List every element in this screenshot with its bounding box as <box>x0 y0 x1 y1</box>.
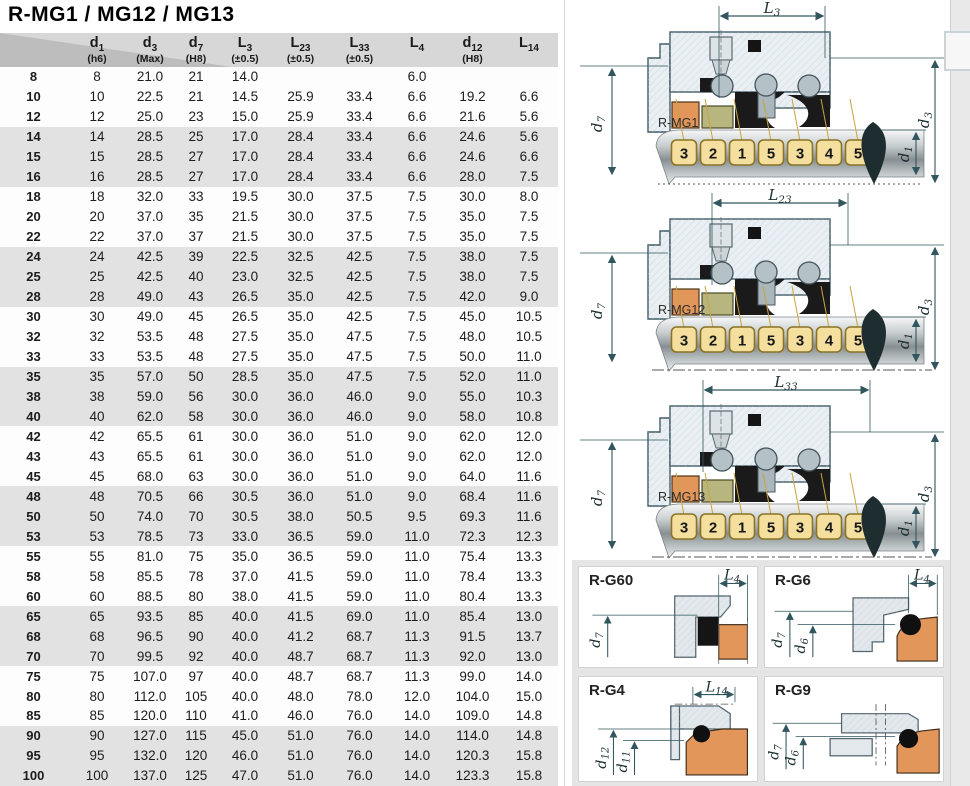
cell-d12: 38.0 <box>445 267 500 287</box>
cell-d1: 53 <box>67 526 127 546</box>
cell-d7: 90 <box>173 626 219 646</box>
cell-size: 12 <box>0 107 67 127</box>
cell-L14: 14.8 <box>500 706 558 726</box>
cell-d3: 21.0 <box>127 67 173 87</box>
cell-d1: 95 <box>67 746 127 766</box>
cell-d1: 58 <box>67 566 127 586</box>
cell-d3: 137.0 <box>127 766 173 786</box>
cell-size: 20 <box>0 207 67 227</box>
cell-L4: 7.5 <box>389 267 445 287</box>
cell-L3: 19.5 <box>219 187 271 207</box>
cell-L23: 36.0 <box>271 406 330 426</box>
seal-model-label: R-MG12 <box>658 303 705 317</box>
seal-cross-section-mg13: L33 R-MG13 3 2 1 5 3 4 5 d7 d1 d3 <box>572 374 950 560</box>
cell-L4: 12.0 <box>389 686 445 706</box>
cell-d12: 35.0 <box>445 207 500 227</box>
cell-L23 <box>271 67 330 87</box>
cell-L23: 32.5 <box>271 247 330 267</box>
cell-L3: 14.5 <box>219 87 271 107</box>
cell-size: 40 <box>0 406 67 426</box>
cell-d12: 35.0 <box>445 227 500 247</box>
dimension-label-L4: L4 <box>723 568 740 586</box>
svg-text:4: 4 <box>825 520 834 537</box>
svg-text:1: 1 <box>738 333 746 350</box>
dimension-label-d3: d3 <box>915 112 935 129</box>
table-body: 8 8 21.0 21 14.0 6.0 10 10 22.5 21 14.5 … <box>0 67 558 786</box>
cell-d12: 123.3 <box>445 766 500 786</box>
cell-size: 45 <box>0 466 67 486</box>
cell-d12: 91.5 <box>445 626 500 646</box>
cell-L3: 40.0 <box>219 606 271 626</box>
svg-text:3: 3 <box>680 146 688 163</box>
cell-d12: 30.0 <box>445 187 500 207</box>
cell-L23: 36.0 <box>271 486 330 506</box>
right-margin-strip <box>950 0 970 786</box>
cell-L4: 7.5 <box>389 307 445 327</box>
cell-L3: 14.0 <box>219 67 271 87</box>
cell-d1: 43 <box>67 446 127 466</box>
table-row: 32 32 53.5 48 27.5 35.0 47.5 7.5 48.0 10… <box>0 327 558 347</box>
cell-L14: 11.0 <box>500 347 558 367</box>
table-row: 40 40 62.0 58 30.0 36.0 46.0 9.0 58.0 10… <box>0 406 558 426</box>
cell-L3: 30.5 <box>219 486 271 506</box>
cell-d7: 25 <box>173 127 219 147</box>
cell-L4: 6.6 <box>389 127 445 147</box>
cell-L4: 9.5 <box>389 506 445 526</box>
cell-L14: 9.0 <box>500 287 558 307</box>
table-row: 16 16 28.5 27 17.0 28.4 33.4 6.6 28.0 7.… <box>0 167 558 187</box>
cell-L14: 7.5 <box>500 227 558 247</box>
cell-size: 95 <box>0 746 67 766</box>
cell-L33: 76.0 <box>330 746 389 766</box>
cell-L33: 68.7 <box>330 646 389 666</box>
cell-d7: 27 <box>173 147 219 167</box>
cell-d1: 30 <box>67 307 127 327</box>
cell-d3: 70.5 <box>127 486 173 506</box>
cell-L4: 7.5 <box>389 327 445 347</box>
cell-size: 53 <box>0 526 67 546</box>
cell-d3: 74.0 <box>127 506 173 526</box>
cell-L4: 6.6 <box>389 147 445 167</box>
cell-L14: 7.5 <box>500 247 558 267</box>
cell-L14: 13.0 <box>500 646 558 666</box>
cell-L4: 6.6 <box>389 167 445 187</box>
cell-d7: 63 <box>173 466 219 486</box>
cell-d12: 52.0 <box>445 367 500 387</box>
cell-d7: 61 <box>173 426 219 446</box>
cell-d12: 24.6 <box>445 127 500 147</box>
cell-L33: 69.0 <box>330 606 389 626</box>
diagram-r-mg1: L3 R-MG1 3 2 1 5 3 4 5 d7 d1 d3 <box>572 0 950 186</box>
cell-d1: 42 <box>67 426 127 446</box>
cell-size: 8 <box>0 67 67 87</box>
cell-d12: 99.0 <box>445 666 500 686</box>
cell-L33: 37.5 <box>330 227 389 247</box>
cell-d1: 60 <box>67 586 127 606</box>
dimension-label-d3: d3 <box>915 299 935 316</box>
cell-L3: 21.5 <box>219 207 271 227</box>
dimension-label-d7: d7 <box>766 744 784 760</box>
cell-d1: 8 <box>67 67 127 87</box>
header-cell-L4: L4 <box>389 33 445 67</box>
svg-text:3: 3 <box>680 520 688 537</box>
cell-L33: 37.5 <box>330 187 389 207</box>
dimension-label-d12: d12 <box>594 747 612 769</box>
cell-d7: 39 <box>173 247 219 267</box>
cell-size: 100 <box>0 766 67 786</box>
cell-L33: 47.5 <box>330 327 389 347</box>
cell-d1: 45 <box>67 466 127 486</box>
cell-L33: 33.4 <box>330 147 389 167</box>
cell-L4: 9.0 <box>389 466 445 486</box>
cell-L4: 14.0 <box>389 746 445 766</box>
cell-L23: 48.7 <box>271 666 330 686</box>
dimension-label-L3: L3 <box>763 0 781 19</box>
cell-L33: 42.5 <box>330 287 389 307</box>
cell-L3: 47.0 <box>219 766 271 786</box>
table-row: 90 90 127.0 115 45.0 51.0 76.0 14.0 114.… <box>0 726 558 746</box>
cell-L33: 33.4 <box>330 107 389 127</box>
cell-L3: 17.0 <box>219 167 271 187</box>
cell-d12: 48.0 <box>445 327 500 347</box>
cell-d12: 75.4 <box>445 546 500 566</box>
seal-model-label: R-MG13 <box>658 490 705 504</box>
cell-L33: 33.4 <box>330 127 389 147</box>
cell-L14: 10.8 <box>500 406 558 426</box>
dimension-label-d7: d7 <box>588 303 608 320</box>
cell-L23: 51.0 <box>271 766 330 786</box>
cell-L14: 13.7 <box>500 626 558 646</box>
cell-L4: 7.5 <box>389 187 445 207</box>
dimension-label-L33: L33 <box>773 374 798 393</box>
cell-d3: 78.5 <box>127 526 173 546</box>
cell-L23: 36.5 <box>271 526 330 546</box>
cell-L33: 51.0 <box>330 486 389 506</box>
cell-d3: 81.0 <box>127 546 173 566</box>
svg-text:5: 5 <box>767 333 775 350</box>
cell-L23: 36.0 <box>271 466 330 486</box>
cell-d3: 28.5 <box>127 167 173 187</box>
cell-size: 15 <box>0 147 67 167</box>
dimensions-table: d1(h6) d3(Max) d7(H8) L3(±0.5) L23(±0.5)… <box>0 33 558 786</box>
cell-L3: 15.0 <box>219 107 271 127</box>
cell-L3: 17.0 <box>219 147 271 167</box>
table-row: 58 58 85.5 78 37.0 41.5 59.0 11.0 78.4 1… <box>0 566 558 586</box>
cell-d3: 25.0 <box>127 107 173 127</box>
cell-d3: 96.5 <box>127 626 173 646</box>
header-cell-L23: L23(±0.5) <box>271 33 330 67</box>
cell-L4: 7.5 <box>389 247 445 267</box>
cell-d1: 32 <box>67 327 127 347</box>
table-row: 70 70 99.5 92 40.0 48.7 68.7 11.3 92.0 1… <box>0 646 558 666</box>
cell-L33: 46.0 <box>330 406 389 426</box>
cell-size: 16 <box>0 167 67 187</box>
cell-size: 70 <box>0 646 67 666</box>
cell-d3: 88.5 <box>127 586 173 606</box>
header-cell-d12: d12(H8) <box>445 33 500 67</box>
cell-L3: 30.5 <box>219 506 271 526</box>
cell-L14: 14.0 <box>500 666 558 686</box>
cell-d7: 50 <box>173 367 219 387</box>
cell-size: 75 <box>0 666 67 686</box>
cell-d3: 49.0 <box>127 307 173 327</box>
cell-d1: 28 <box>67 287 127 307</box>
cell-L3: 30.0 <box>219 387 271 407</box>
cell-L3: 30.0 <box>219 406 271 426</box>
cell-L23: 36.0 <box>271 426 330 446</box>
cell-d7: 23 <box>173 107 219 127</box>
cell-L3: 30.0 <box>219 426 271 446</box>
svg-text:2: 2 <box>709 333 717 350</box>
table-row: 15 15 28.5 27 17.0 28.4 33.4 6.6 24.6 6.… <box>0 147 558 167</box>
cell-d7: 48 <box>173 347 219 367</box>
cell-d1: 15 <box>67 147 127 167</box>
table-row: 80 80 112.0 105 40.0 48.0 78.0 12.0 104.… <box>0 686 558 706</box>
cell-d7: 115 <box>173 726 219 746</box>
cell-L4: 11.0 <box>389 546 445 566</box>
cell-size: 10 <box>0 87 67 107</box>
cell-size: 33 <box>0 347 67 367</box>
cell-L33: 76.0 <box>330 706 389 726</box>
cell-L33: 59.0 <box>330 566 389 586</box>
cell-d12: 19.2 <box>445 87 500 107</box>
cell-L33: 42.5 <box>330 267 389 287</box>
table-row: 28 28 49.0 43 26.5 35.0 42.5 7.5 42.0 9.… <box>0 287 558 307</box>
table-row: 65 65 93.5 85 40.0 41.5 69.0 11.0 85.4 1… <box>0 606 558 626</box>
cell-d3: 93.5 <box>127 606 173 626</box>
cell-size: 60 <box>0 586 67 606</box>
table-row: 38 38 59.0 56 30.0 36.0 46.0 9.0 55.0 10… <box>0 387 558 407</box>
table-row: 50 50 74.0 70 30.5 38.0 50.5 9.5 69.3 11… <box>0 506 558 526</box>
cell-d7: 40 <box>173 267 219 287</box>
cell-L4: 7.5 <box>389 287 445 307</box>
cell-d7: 37 <box>173 227 219 247</box>
cell-d3: 62.0 <box>127 406 173 426</box>
header-corner-cell <box>0 33 67 67</box>
dimension-label-d7: d7 <box>588 490 608 507</box>
cell-d1: 25 <box>67 267 127 287</box>
cell-L33: 51.0 <box>330 426 389 446</box>
cell-L3: 38.0 <box>219 586 271 606</box>
table-row: 12 12 25.0 23 15.0 25.9 33.4 6.6 21.6 5.… <box>0 107 558 127</box>
svg-text:5: 5 <box>854 146 862 163</box>
cell-L4: 14.0 <box>389 766 445 786</box>
cell-size: 18 <box>0 187 67 207</box>
cell-L14: 13.3 <box>500 586 558 606</box>
cell-L23: 51.0 <box>271 746 330 766</box>
cell-L33 <box>330 67 389 87</box>
cell-d12: 21.6 <box>445 107 500 127</box>
cell-L4: 14.0 <box>389 706 445 726</box>
cell-L4: 6.6 <box>389 87 445 107</box>
cell-d7: 73 <box>173 526 219 546</box>
table-row: 35 35 57.0 50 28.5 35.0 47.5 7.5 52.0 11… <box>0 367 558 387</box>
cell-d1: 85 <box>67 706 127 726</box>
svg-text:2: 2 <box>709 146 717 163</box>
cell-d12: 68.4 <box>445 486 500 506</box>
cell-d7: 58 <box>173 406 219 426</box>
cell-L23: 32.5 <box>271 267 330 287</box>
cell-L4: 6.0 <box>389 67 445 87</box>
cell-d1: 35 <box>67 367 127 387</box>
cell-size: 38 <box>0 387 67 407</box>
cell-L14: 11.6 <box>500 486 558 506</box>
cell-L33: 47.5 <box>330 347 389 367</box>
cell-L33: 51.0 <box>330 466 389 486</box>
cell-size: 30 <box>0 307 67 327</box>
cell-L23: 25.9 <box>271 107 330 127</box>
seat-detail-panels: R-G60 L4 d7 R-G6 <box>572 560 950 786</box>
cell-L3: 30.0 <box>219 466 271 486</box>
header-cell-d3: d3(Max) <box>127 33 173 67</box>
table-row: 55 55 81.0 75 35.0 36.5 59.0 11.0 75.4 1… <box>0 546 558 566</box>
panel-title: R-G4 <box>589 682 625 699</box>
cell-L3: 17.0 <box>219 127 271 147</box>
table-row: 18 18 32.0 33 19.5 30.0 37.5 7.5 30.0 8.… <box>0 187 558 207</box>
cell-L14: 5.6 <box>500 127 558 147</box>
dimension-label-d7: d7 <box>588 632 606 648</box>
cell-size: 42 <box>0 426 67 446</box>
cell-L23: 41.5 <box>271 586 330 606</box>
cell-d7: 61 <box>173 446 219 466</box>
dimension-label-d7: d7 <box>588 116 608 133</box>
cell-L14: 6.6 <box>500 87 558 107</box>
cell-L23: 51.0 <box>271 726 330 746</box>
cell-L3: 46.0 <box>219 746 271 766</box>
cell-d3: 85.5 <box>127 566 173 586</box>
table-row: 20 20 37.0 35 21.5 30.0 37.5 7.5 35.0 7.… <box>0 207 558 227</box>
cell-d7: 43 <box>173 287 219 307</box>
cell-L33: 59.0 <box>330 546 389 566</box>
cell-d3: 57.0 <box>127 367 173 387</box>
panel-r-g6: R-G6 L4 d7 d6 <box>764 566 944 668</box>
cell-L4: 11.0 <box>389 526 445 546</box>
cell-L33: 42.5 <box>330 307 389 327</box>
cell-L14: 7.5 <box>500 207 558 227</box>
table-row: 33 33 53.5 48 27.5 35.0 47.5 7.5 50.0 11… <box>0 347 558 367</box>
cell-d12: 55.0 <box>445 387 500 407</box>
svg-text:3: 3 <box>796 520 804 537</box>
header-cell-d7: d7(H8) <box>173 33 219 67</box>
dimension-label-d3: d3 <box>915 486 935 503</box>
cell-d7: 33 <box>173 187 219 207</box>
cell-L33: 59.0 <box>330 526 389 546</box>
cell-size: 43 <box>0 446 67 466</box>
cell-L3: 27.5 <box>219 327 271 347</box>
cell-size: 58 <box>0 566 67 586</box>
cell-L4: 9.0 <box>389 486 445 506</box>
dimension-label-d7: d7 <box>770 632 788 648</box>
cell-d1: 16 <box>67 167 127 187</box>
cell-L4: 9.0 <box>389 387 445 407</box>
cell-L33: 68.7 <box>330 666 389 686</box>
diagram-r-mg13: L33 R-MG13 3 2 1 5 3 4 5 d7 d1 d3 <box>572 374 950 560</box>
cell-d3: 65.5 <box>127 446 173 466</box>
cell-L14: 12.0 <box>500 446 558 466</box>
cell-d3: 65.5 <box>127 426 173 446</box>
cell-L14: 15.0 <box>500 686 558 706</box>
cell-d3: 53.5 <box>127 347 173 367</box>
cell-d12: 72.3 <box>445 526 500 546</box>
cell-d3: 127.0 <box>127 726 173 746</box>
cell-d12: 62.0 <box>445 446 500 466</box>
cell-d3: 32.0 <box>127 187 173 207</box>
cell-L33: 50.5 <box>330 506 389 526</box>
cell-L3: 37.0 <box>219 566 271 586</box>
cell-d1: 10 <box>67 87 127 107</box>
cell-L23: 41.2 <box>271 626 330 646</box>
table-row: 14 14 28.5 25 17.0 28.4 33.4 6.6 24.6 5.… <box>0 127 558 147</box>
cell-L33: 42.5 <box>330 247 389 267</box>
cell-size: 24 <box>0 247 67 267</box>
cell-d7: 125 <box>173 766 219 786</box>
cell-L4: 11.3 <box>389 646 445 666</box>
cell-d1: 38 <box>67 387 127 407</box>
cell-L33: 78.0 <box>330 686 389 706</box>
cell-L14: 15.8 <box>500 746 558 766</box>
cell-d12: 28.0 <box>445 167 500 187</box>
cell-d3: 37.0 <box>127 227 173 247</box>
cell-size: 14 <box>0 127 67 147</box>
cell-d3: 112.0 <box>127 686 173 706</box>
cell-L4: 11.3 <box>389 666 445 686</box>
cell-d1: 48 <box>67 486 127 506</box>
cell-size: 28 <box>0 287 67 307</box>
table-row: 25 25 42.5 40 23.0 32.5 42.5 7.5 38.0 7.… <box>0 267 558 287</box>
cell-L23: 36.0 <box>271 387 330 407</box>
dimension-label-d11: d11 <box>615 751 633 773</box>
cell-d1: 22 <box>67 227 127 247</box>
cell-d3: 28.5 <box>127 127 173 147</box>
cell-L14 <box>500 67 558 87</box>
cell-d3: 49.0 <box>127 287 173 307</box>
dimension-label-L23: L23 <box>767 187 792 206</box>
cell-size: 22 <box>0 227 67 247</box>
cell-L3: 23.0 <box>219 267 271 287</box>
header-cell-d1: d1(h6) <box>67 33 127 67</box>
cell-d1: 70 <box>67 646 127 666</box>
cell-d1: 65 <box>67 606 127 626</box>
cell-L14: 15.8 <box>500 766 558 786</box>
seal-model-label: R-MG1 <box>658 116 698 130</box>
cell-d7: 97 <box>173 666 219 686</box>
cell-L23: 28.4 <box>271 167 330 187</box>
diagram-r-mg12: L23 R-MG12 3 2 1 5 3 4 5 d7 d1 d3 <box>572 187 950 373</box>
cell-L14: 13.3 <box>500 566 558 586</box>
svg-text:1: 1 <box>738 146 746 163</box>
cell-d3: 53.5 <box>127 327 173 347</box>
cell-d12: 120.3 <box>445 746 500 766</box>
panel-r-g60: R-G60 L4 d7 <box>578 566 758 668</box>
cell-d12: 80.4 <box>445 586 500 606</box>
cell-d3: 120.0 <box>127 706 173 726</box>
cell-L14: 7.5 <box>500 267 558 287</box>
svg-text:3: 3 <box>680 333 688 350</box>
table-row: 24 24 42.5 39 22.5 32.5 42.5 7.5 38.0 7.… <box>0 247 558 267</box>
header-cell-L3: L3(±0.5) <box>219 33 271 67</box>
dimension-label-L4: L4 <box>913 568 930 586</box>
cell-L4: 9.0 <box>389 446 445 466</box>
cell-L23: 48.7 <box>271 646 330 666</box>
cell-L23: 30.0 <box>271 187 330 207</box>
cell-L3: 40.0 <box>219 626 271 646</box>
cell-d12: 45.0 <box>445 307 500 327</box>
cell-d1: 18 <box>67 187 127 207</box>
cell-L3: 35.0 <box>219 546 271 566</box>
svg-text:2: 2 <box>709 520 717 537</box>
cell-d12: 114.0 <box>445 726 500 746</box>
cell-L23: 48.0 <box>271 686 330 706</box>
